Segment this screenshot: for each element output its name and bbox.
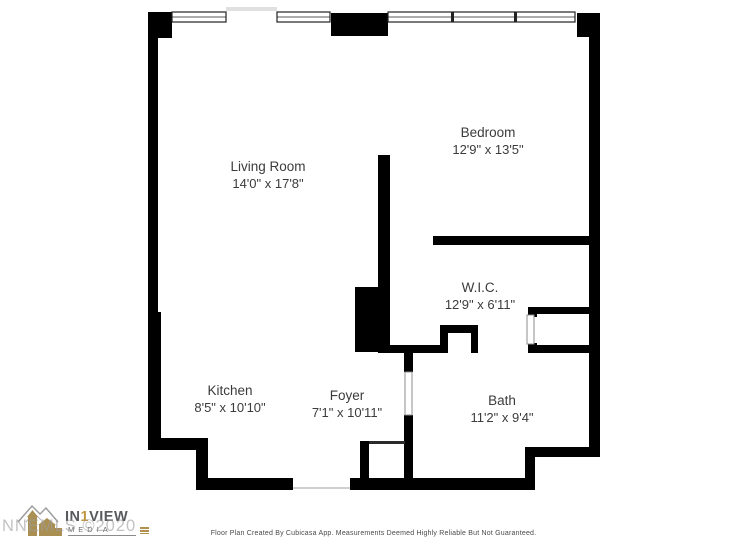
wall-bath-doorjamb-h — [440, 325, 478, 333]
wall-shaft-block — [355, 287, 390, 352]
wall-top-right-corner — [577, 13, 600, 37]
room-dims-bedroom: 12'9" x 13'5" — [452, 141, 523, 158]
wall-bottom-kitchen — [196, 478, 293, 490]
room-label-foyer: Foyer 7'1" x 10'11" — [312, 387, 382, 421]
room-dims-living-room: 14'0" x 17'8" — [230, 175, 305, 192]
room-name-bath: Bath — [470, 392, 533, 409]
window-living-right — [277, 12, 330, 22]
wall-foyer-closet-left — [360, 441, 369, 482]
room-dims-bath: 11'2" x 9'4" — [470, 409, 533, 426]
floorplan-canvas: Living Room 14'0" x 17'8" Bedroom 12'9" … — [0, 0, 747, 560]
wall-foyer-bath-upper — [404, 352, 413, 372]
wall-bottom-foyer-bath — [350, 478, 535, 490]
wall-right — [589, 13, 600, 457]
wall-wic-bottom — [382, 345, 440, 353]
wall-bath-doorjamb-stub — [471, 333, 478, 353]
door-bath — [405, 372, 412, 415]
wall-top-center-block — [331, 13, 388, 36]
wall-left-lower — [148, 312, 161, 442]
room-dims-foyer: 7'1" x 10'11" — [312, 404, 382, 421]
window-bedroom — [388, 12, 575, 22]
entry-door-faint-line — [293, 487, 350, 489]
window-living-left — [172, 12, 226, 22]
room-name-wic: W.I.C. — [445, 279, 515, 296]
wall-bottom-right-step-h — [525, 447, 600, 457]
room-name-foyer: Foyer — [312, 387, 382, 404]
room-name-kitchen: Kitchen — [194, 382, 265, 399]
room-name-living-room: Living Room — [230, 158, 305, 175]
room-label-bedroom: Bedroom 12'9" x 13'5" — [452, 124, 523, 158]
room-label-bath: Bath 11'2" x 9'4" — [470, 392, 533, 426]
wall-left-upper — [148, 12, 158, 312]
wall-bottom-left-step-h — [148, 438, 208, 450]
room-label-wic: W.I.C. 12'9" x 6'11" — [445, 279, 515, 313]
room-label-living-room: Living Room 14'0" x 17'8" — [230, 158, 305, 192]
room-dims-wic: 12'9" x 6'11" — [445, 296, 515, 313]
door-linen-closet — [527, 315, 534, 344]
room-dims-kitchen: 8'5" x 10'10" — [194, 399, 265, 416]
opening-top-faint-line — [226, 7, 277, 11]
wall-foyer-bath-lower — [404, 415, 413, 487]
room-name-bedroom: Bedroom — [452, 124, 523, 141]
disclaimer-text: Floor Plan Created By Cubicasa App. Meas… — [0, 530, 747, 537]
interior-walls — [355, 155, 600, 487]
wall-bedroom-bottom — [433, 236, 600, 245]
in1view-logo: IN1VIEW MEDIA NNEMLS ©2020 — [10, 500, 160, 550]
wall-linen-closet-bottom — [528, 345, 600, 353]
floorplan-drawing — [0, 0, 747, 560]
wall-foyer-closet-top-line — [369, 441, 405, 444]
room-label-kitchen: Kitchen 8'5" x 10'10" — [194, 382, 265, 416]
wall-linen-closet-top — [528, 307, 589, 314]
